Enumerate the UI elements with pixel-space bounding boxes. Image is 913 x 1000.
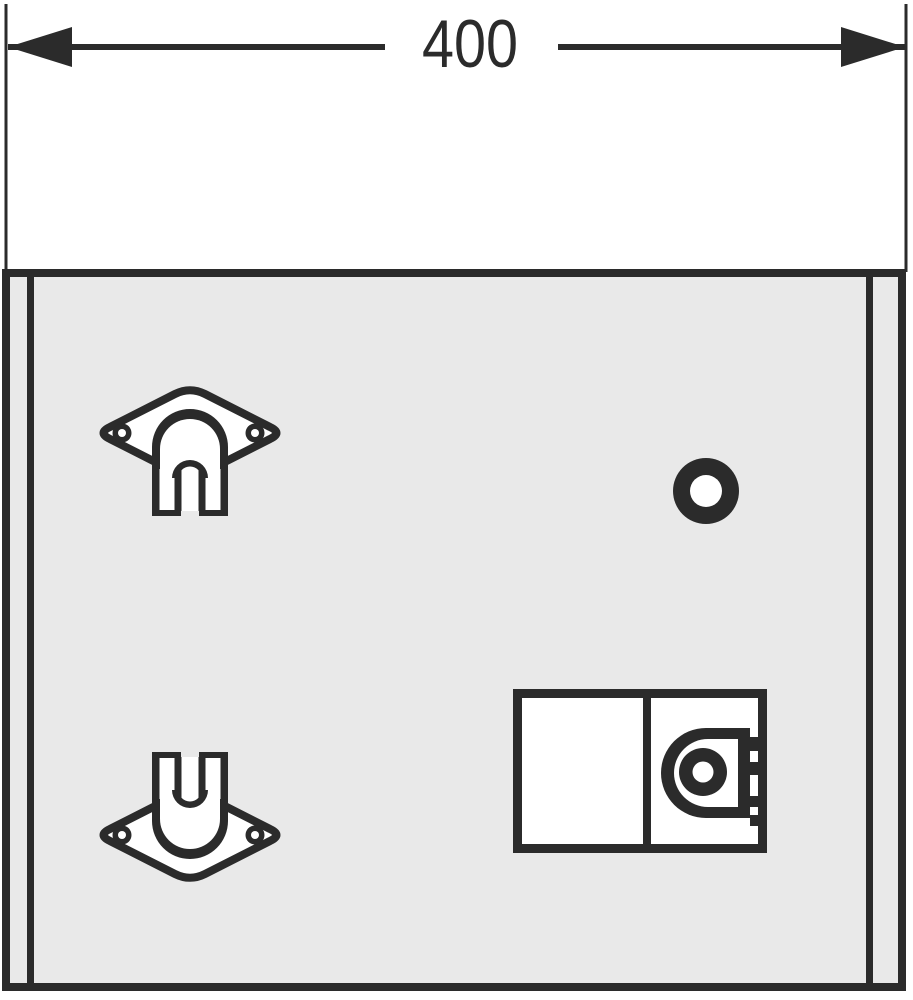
extension-line-left (5, 4, 8, 272)
lock-latch-tab (750, 796, 762, 807)
panel-left-profile-line (27, 277, 34, 983)
panel-right-profile-line (866, 277, 873, 983)
lock-latch-tab (750, 815, 762, 826)
panel-right-edge (898, 269, 906, 991)
technical-drawing: 400 (0, 0, 913, 1000)
panel-top-edge (2, 269, 906, 277)
dimension-label: 400 (422, 6, 518, 82)
lock-keyhole (693, 762, 714, 783)
mounting-hole (673, 458, 739, 524)
panel-face (10, 277, 898, 983)
coin-lock-module (518, 689, 763, 853)
front-panel (2, 269, 906, 991)
lock-housing-divider (643, 689, 651, 853)
lock-latch-tab (750, 762, 762, 775)
drawing-canvas: 400 (0, 0, 913, 1000)
panel-bottom-edge (2, 983, 906, 991)
panel-left-edge (2, 269, 10, 991)
lock-latch-tab (750, 737, 762, 751)
